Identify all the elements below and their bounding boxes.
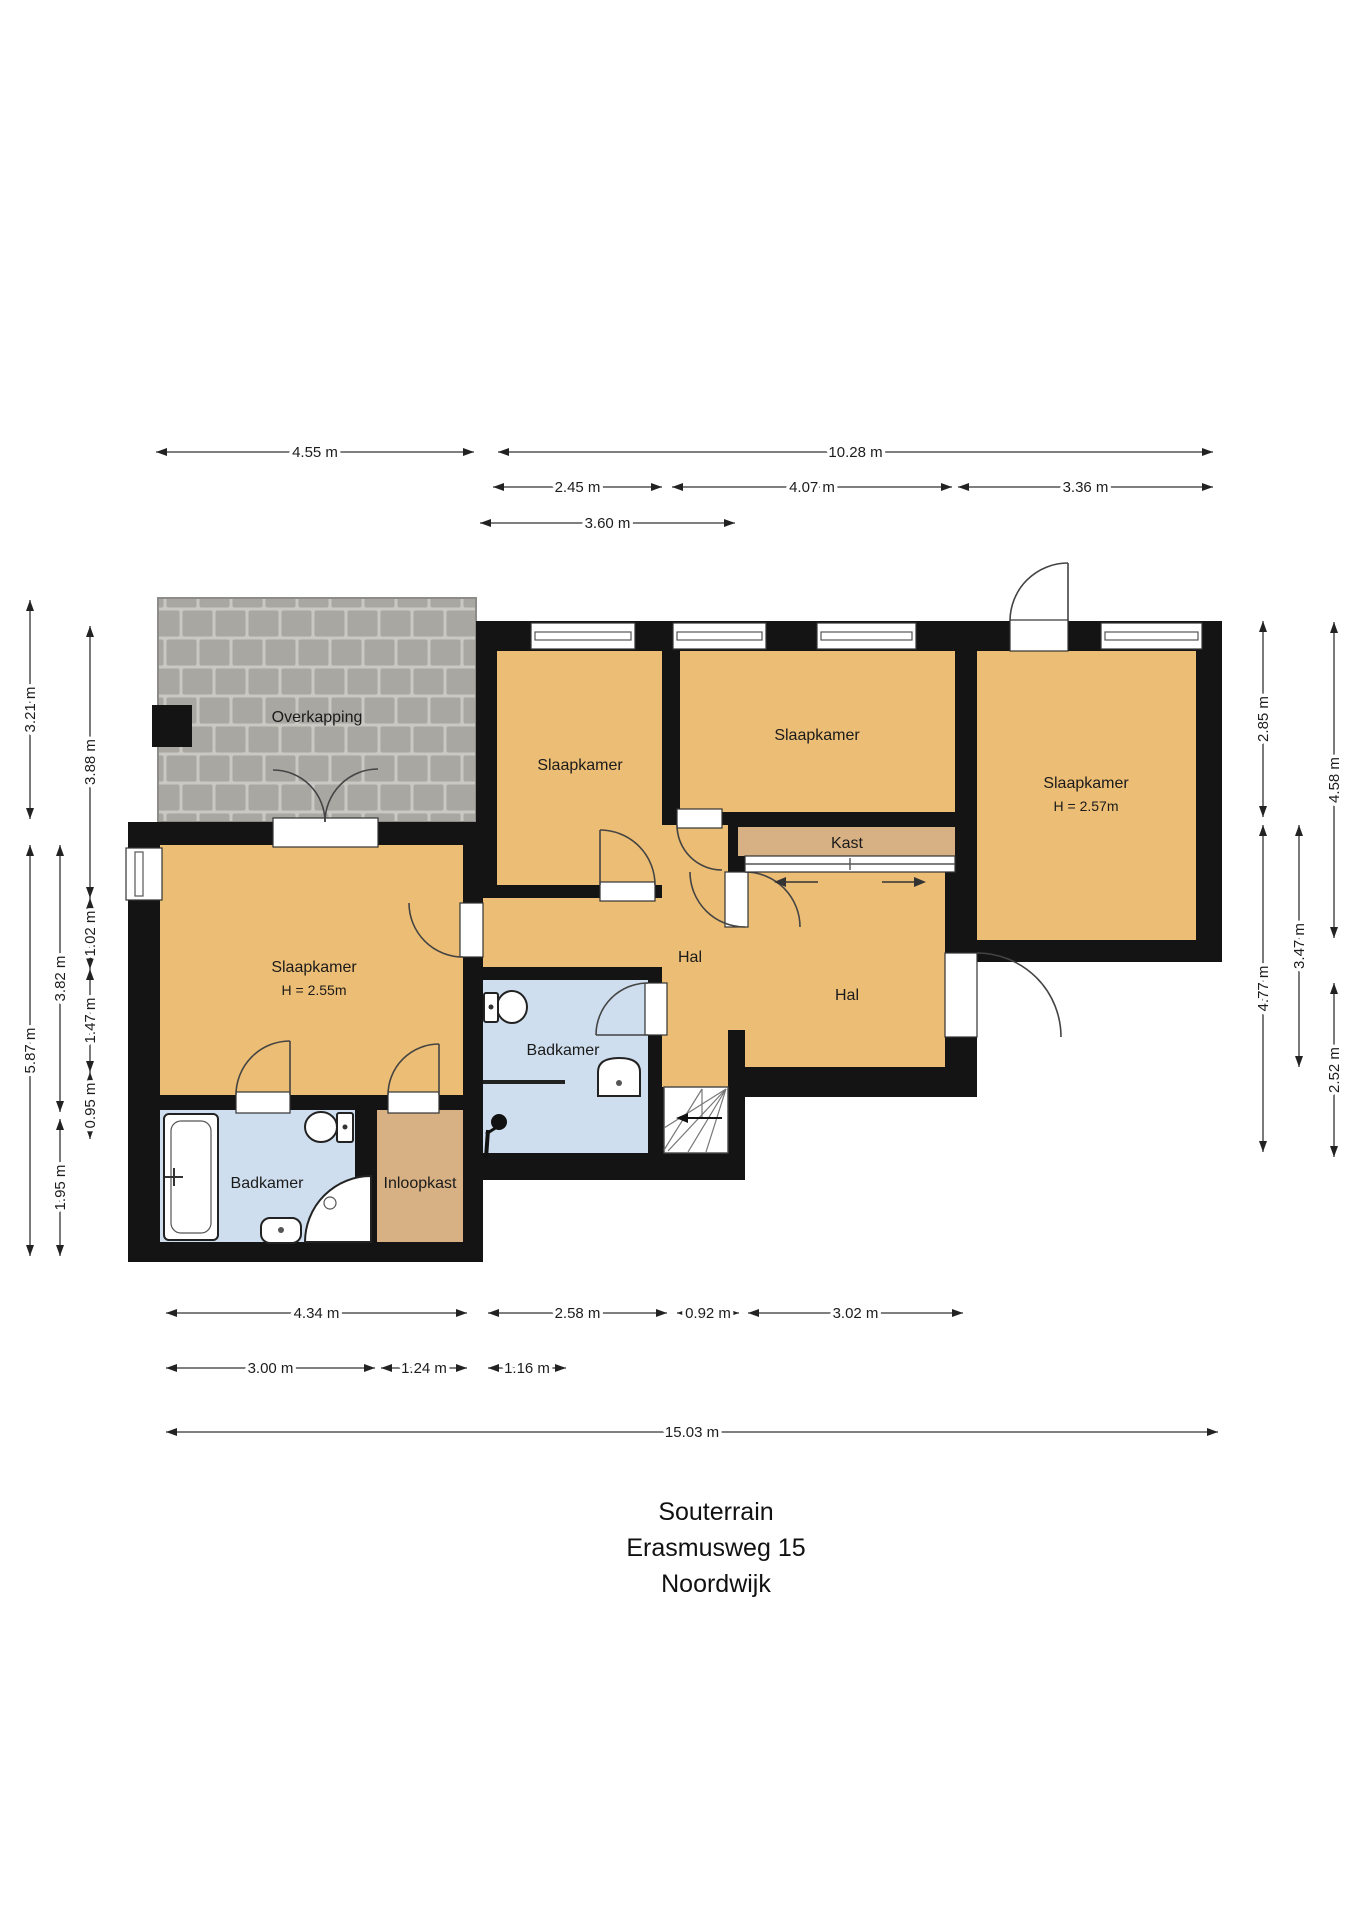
dimension-3.36-m: 3.36 m [958,479,1213,496]
dimension-label: 4.77 m [1255,966,1272,1012]
toilet-icon [484,991,527,1023]
floorplan-page: Overkapping Slaapkamer Slaapkamer Slaapk… [0,0,1358,1920]
dimension-label: 2.45 m [555,479,601,496]
dimension-label: 1.02 m [82,911,99,957]
room-label-overkapping: Overkapping [272,709,363,726]
stairs-icon [664,1087,728,1153]
room-label-bedroom-right: Slaapkamer [1043,775,1129,792]
dimension-3.02-m: 3.02 m [748,1305,963,1322]
dimension-label: 15.03 m [665,1424,719,1441]
dimension-label: 1.16 m [504,1360,550,1377]
dimension-1.24-m: 1.24 m [381,1360,467,1377]
dimension-label: 4.55 m [292,444,338,461]
floor-hal-right [745,872,945,1067]
room-label-bedroom-top-middle: Slaapkamer [774,727,860,744]
window-icon [673,623,766,649]
dimension-4.58-m: 4.58 m [1326,622,1343,938]
window-icon [1101,623,1202,649]
floor-bedroom-right [977,651,1196,940]
dimension-3.88-m: 3.88 m [82,626,99,898]
dimension-label: 1.47 m [82,998,99,1044]
dimension-5.87-m: 5.87 m [22,845,39,1256]
dimension-1.02-m: 1.02 m [82,898,99,969]
dimension-label: 0.95 m [82,1083,99,1129]
dimension-4.77-m: 4.77 m [1255,825,1272,1152]
dimension-label: 2.52 m [1326,1047,1343,1093]
dimension-label: 3.21 m [22,687,39,733]
dimension-10.28-m: 10.28 m [498,444,1213,461]
dimension-2.58-m: 2.58 m [488,1305,667,1322]
dimension-label: 0.92 m [685,1305,731,1322]
floor-hal-corridor [483,898,662,967]
window-icon [126,848,162,900]
dimension-2.52-m: 2.52 m [1326,983,1343,1157]
room-label-bedroom-top-left: Slaapkamer [537,757,623,774]
room-label-badkamer-left: Badkamer [231,1175,305,1192]
dimension-label: 1.24 m [401,1360,447,1377]
dimension-4.07-m: 4.07 m [672,479,952,496]
sink-icon [261,1218,301,1243]
plan-address: Erasmusweg 15 [626,1534,805,1562]
dimension-label: 5.87 m [22,1028,39,1074]
dimension-label: 10.28 m [828,444,882,461]
dimension-3.82-m: 3.82 m [52,845,69,1112]
dimension-1.95-m: 1.95 m [52,1119,69,1256]
bathtub-icon [164,1114,218,1240]
room-label-inloopkast: Inloopkast [384,1175,457,1192]
sink-icon [598,1058,640,1096]
dimension-2.45-m: 2.45 m [493,479,662,496]
dimension-label: 3.02 m [833,1305,879,1322]
dimension-label: 3.36 m [1063,479,1109,496]
dimension-1.16-m: 1.16 m [488,1360,566,1377]
dimension-label: 2.85 m [1255,696,1272,742]
window-icon [531,623,635,649]
plan-city: Noordwijk [661,1570,771,1598]
dimension-1.47-m: 1.47 m [82,969,99,1072]
dimension-3.00-m: 3.00 m [166,1360,375,1377]
dimension-3.21-m: 3.21 m [22,600,39,819]
dimension-label: 2.58 m [555,1305,601,1322]
dimension-0.95-m: 0.95 m [82,1072,99,1139]
floor-hal-gap [728,927,745,1030]
dimension-label: 4.07 m [789,479,835,496]
door-icon [1010,563,1068,651]
room-label-hal-corridor: Hal [678,949,702,966]
pillar [152,705,192,747]
dimension-label: 3.60 m [585,515,631,532]
dimension-15.03-m: 15.03 m [166,1424,1218,1441]
dimension-3.60-m: 3.60 m [480,515,735,532]
dimension-label: 4.58 m [1326,757,1343,803]
dimension-label: 3.88 m [82,739,99,785]
dimension-label: 3.82 m [52,956,69,1002]
room-label-badkamer-middle: Badkamer [527,1042,601,1059]
dimension-0.92-m: 0.92 m [677,1305,739,1322]
dimension-label: 3.00 m [248,1360,294,1377]
dimension-2.85-m: 2.85 m [1255,621,1272,817]
room-height-bedroom-left: H = 2.55m [282,982,347,998]
dimension-4.55-m: 4.55 m [156,444,474,461]
dimension-label: 1.95 m [52,1165,69,1211]
dimension-3.47-m: 3.47 m [1291,825,1308,1067]
room-label-bedroom-left: Slaapkamer [271,959,357,976]
dimension-label: 4.34 m [294,1305,340,1322]
toilet-icon [305,1112,353,1142]
floorplan-drawing: Overkapping Slaapkamer Slaapkamer Slaapk… [0,0,1358,1920]
door-icon [945,953,1061,1037]
room-label-kast: Kast [831,835,864,852]
dimension-4.34-m: 4.34 m [166,1305,467,1322]
title-block: Souterrain Erasmusweg 15 Noordwijk [626,1498,805,1598]
plan-title: Souterrain [658,1498,773,1526]
room-label-hal-right: Hal [835,987,859,1004]
dimension-label: 3.47 m [1291,923,1308,969]
room-height-bedroom-right: H = 2.57m [1054,798,1119,814]
window-icon [817,623,916,649]
